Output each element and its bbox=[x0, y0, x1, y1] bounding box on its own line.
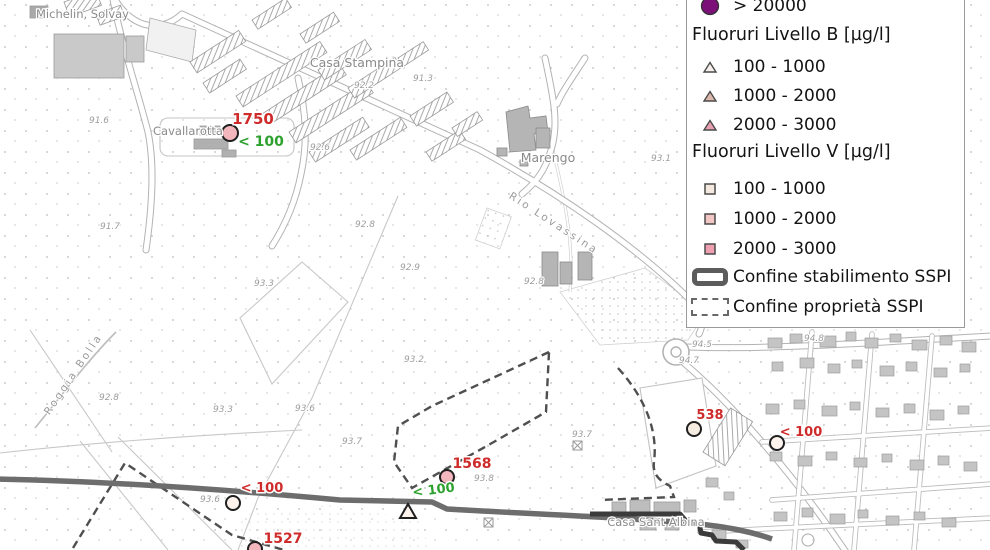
elevation-label: 91.7 bbox=[100, 222, 120, 232]
marker-circle-538[interactable] bbox=[687, 422, 701, 436]
label-cavallarotta: Cavallarotta bbox=[153, 124, 223, 138]
legend-label: 2000 - 3000 bbox=[733, 239, 836, 259]
legend-label: 2000 - 3000 bbox=[733, 115, 836, 135]
legend-label: Confine stabilimento SSPI bbox=[733, 267, 951, 287]
elevation-label: 91.6 bbox=[89, 116, 109, 126]
elevation-label: 94.8 bbox=[804, 334, 824, 344]
elevation-label: 93.6 bbox=[200, 495, 220, 505]
legend-label: 1000 - 2000 bbox=[733, 209, 836, 229]
legend-row-gt20000: > 20000 bbox=[687, 0, 964, 19]
legend-label: Confine proprietà SSPI bbox=[733, 297, 924, 317]
triangle-icon bbox=[702, 60, 718, 74]
elevation-label: 94.5 bbox=[692, 340, 712, 350]
triangle-icon bbox=[702, 89, 718, 103]
legend-row-stabilimento: Confine stabilimento SSPI bbox=[687, 264, 964, 290]
legend-label: 100 - 1000 bbox=[733, 57, 826, 77]
label-casa-sant-albina: Casa Sant Albina bbox=[607, 515, 704, 529]
elevation-label: 93.1 bbox=[651, 154, 671, 164]
legend-row-v3: 2000 - 3000 bbox=[687, 236, 964, 262]
value-lt100-green-cavallarotta: < 100 bbox=[238, 134, 284, 150]
legend-row-v1: 100 - 1000 bbox=[687, 176, 964, 202]
elevation-label: 93.7 bbox=[572, 430, 592, 440]
square-icon bbox=[703, 212, 717, 226]
elevation-label: 91.3 bbox=[413, 74, 433, 84]
legend-panel: > 20000 Fluoruri Livello B [µg/l] 100 - … bbox=[686, 0, 965, 328]
legend-row-b2: 1000 - 2000 bbox=[687, 83, 964, 109]
value-1527: 1527 bbox=[264, 531, 303, 547]
legend-label: > 20000 bbox=[733, 0, 807, 16]
legend-label: 100 - 1000 bbox=[733, 179, 826, 199]
solid-boundary-swatch-icon bbox=[692, 268, 728, 286]
value-lt100-red-right: < 100 bbox=[780, 425, 823, 440]
label-casa-stampina: Casa Stampina bbox=[310, 55, 404, 70]
elevation-label: 92.8 bbox=[524, 277, 544, 287]
legend-row-b1: 100 - 1000 bbox=[687, 54, 964, 80]
value-1750: 1750 bbox=[232, 110, 274, 128]
value-lt100-red-left: < 100 bbox=[241, 481, 284, 496]
elevation-label: 92.9 bbox=[400, 263, 420, 273]
map-viewport: Michelin, Solvay Casa Stampina Cavallaro… bbox=[0, 0, 990, 550]
square-icon bbox=[703, 182, 717, 196]
legend-section-title-b: Fluoruri Livello B [µg/l] bbox=[692, 25, 891, 45]
elevation-label: 92.8 bbox=[99, 393, 119, 403]
elevation-label: 94.7 bbox=[679, 356, 699, 366]
label-marengo: Marengo bbox=[521, 150, 576, 165]
triangle-icon bbox=[702, 118, 718, 132]
elevation-label: 92.8 bbox=[355, 220, 375, 230]
legend-row-v2: 1000 - 2000 bbox=[687, 206, 964, 232]
elevation-label: 92.6 bbox=[310, 143, 330, 153]
legend-label: 1000 - 2000 bbox=[733, 86, 836, 106]
purple-circle-icon bbox=[700, 0, 720, 16]
elevation-label: 93.2 bbox=[404, 355, 424, 365]
legend-row-b3: 2000 - 3000 bbox=[687, 112, 964, 138]
elevation-label: 93.8 bbox=[474, 474, 494, 484]
elevation-label: 93.3 bbox=[254, 279, 274, 289]
elevation-label: 93.3 bbox=[213, 405, 233, 415]
dashed-boundary-swatch-icon bbox=[691, 298, 729, 316]
legend-section-title-v: Fluoruri Livello V [µg/l] bbox=[692, 142, 891, 162]
value-1568: 1568 bbox=[453, 456, 492, 472]
label-michelin-solvay: Michelin, Solvay bbox=[36, 7, 129, 21]
legend-row-proprieta: Confine proprietà SSPI bbox=[687, 294, 964, 320]
elevation-label: 92.2 bbox=[354, 81, 374, 91]
value-538: 538 bbox=[696, 408, 723, 423]
elevation-label: 93.7 bbox=[342, 437, 362, 447]
marker-circle-lt100-left[interactable] bbox=[226, 496, 240, 510]
elevation-label: 93.6 bbox=[295, 404, 315, 414]
marker-circle-1527[interactable] bbox=[248, 542, 262, 550]
square-icon bbox=[703, 242, 717, 256]
